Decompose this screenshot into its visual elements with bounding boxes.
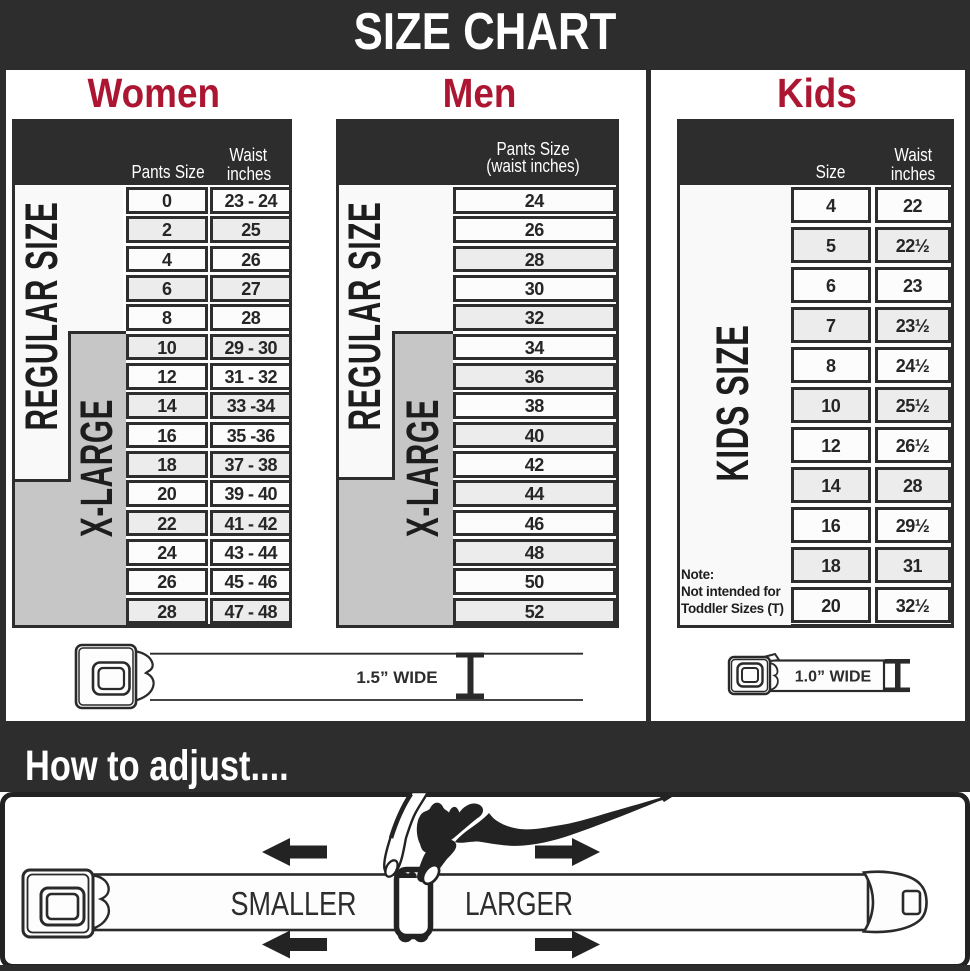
svg-text:LARGER: LARGER — [465, 885, 573, 922]
svg-text:1.5” WIDE: 1.5” WIDE — [356, 668, 437, 687]
svg-text:SMALLER: SMALLER — [231, 885, 357, 922]
svg-text:1.0” WIDE: 1.0” WIDE — [795, 669, 872, 686]
